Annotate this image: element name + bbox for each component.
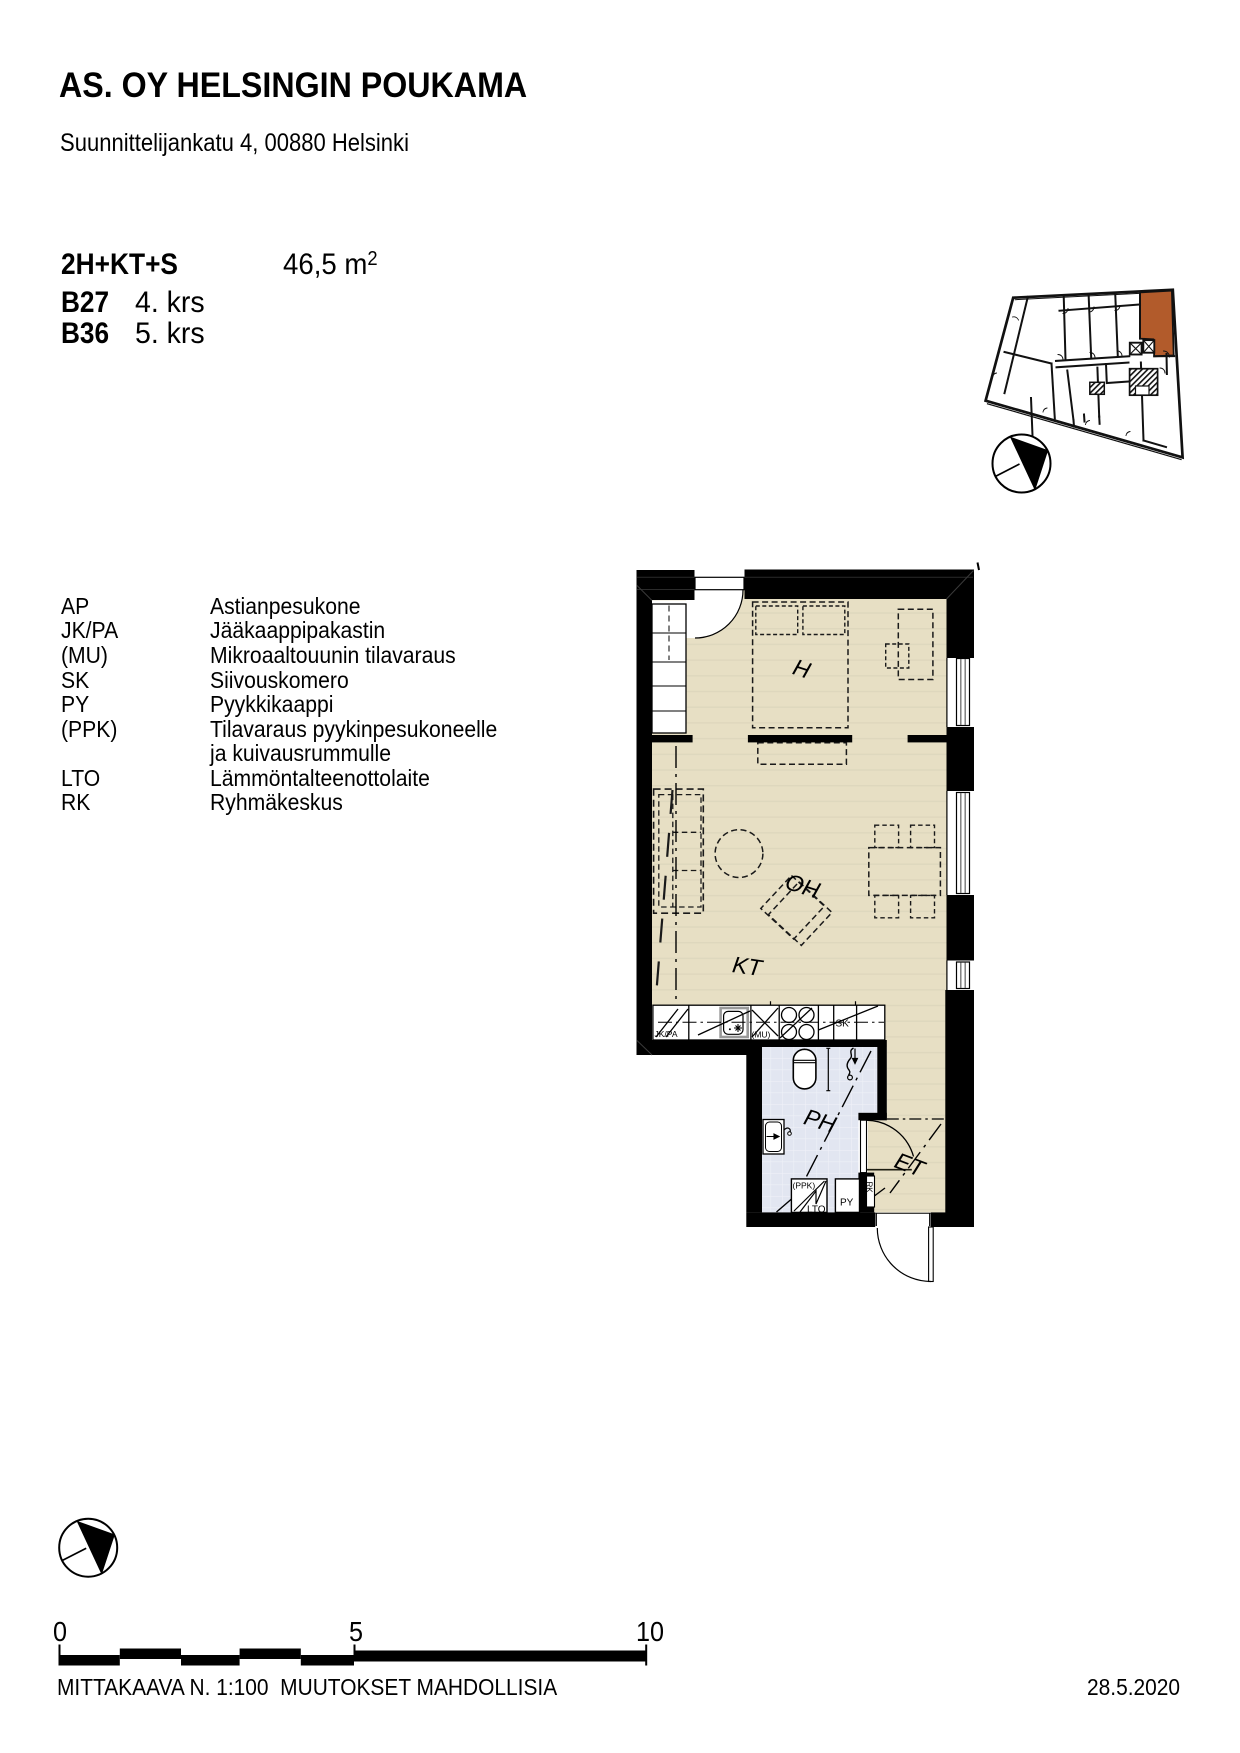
svg-text:KT: KT <box>731 951 766 981</box>
svg-text:LTO: LTO <box>807 1205 826 1216</box>
svg-text:JK/PA: JK/PA <box>655 1029 678 1039</box>
svg-text:RK: RK <box>865 1182 874 1194</box>
svg-text:SK: SK <box>836 1019 850 1030</box>
svg-text:(PPK): (PPK) <box>793 1181 816 1191</box>
svg-text:PY: PY <box>840 1198 854 1209</box>
svg-text:(MU): (MU) <box>752 1030 771 1040</box>
